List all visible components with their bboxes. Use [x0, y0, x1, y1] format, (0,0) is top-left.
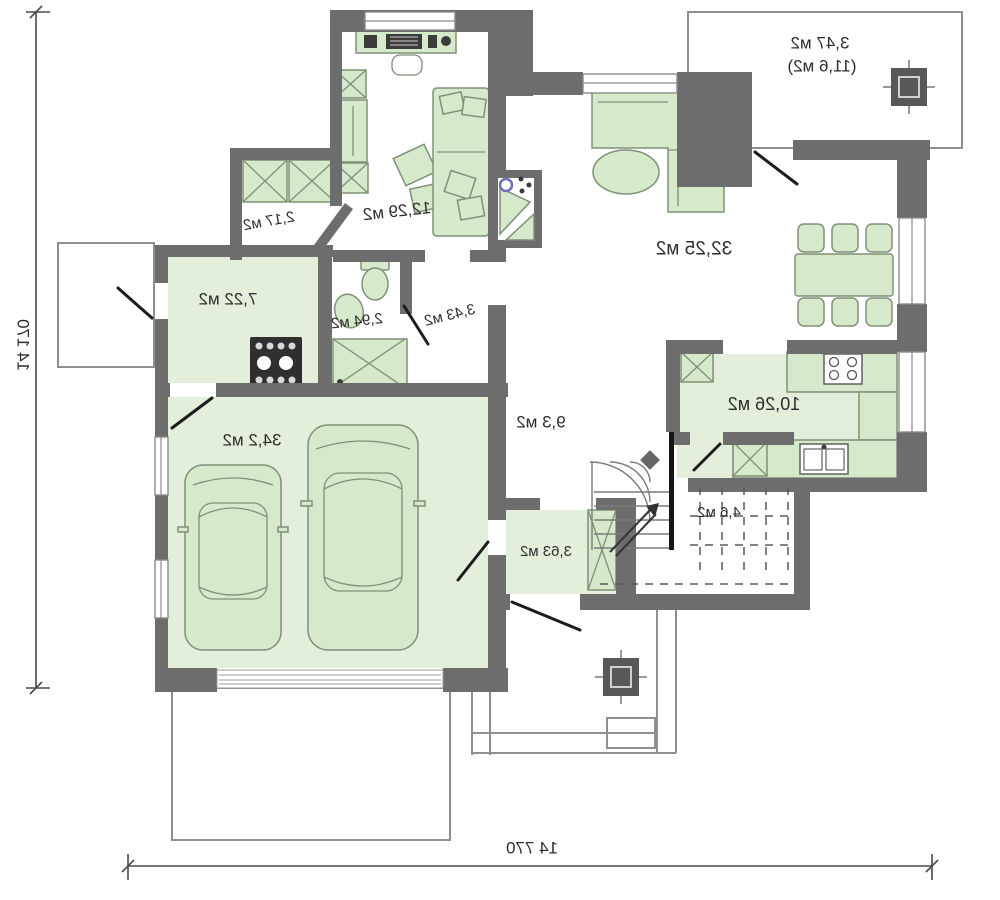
coffee-table — [593, 150, 659, 194]
terrace-lower-outline — [172, 688, 450, 840]
dining-chair — [832, 298, 858, 326]
terrace-door-swing — [755, 152, 797, 184]
bed — [433, 88, 489, 236]
closet-wardrobe — [243, 160, 335, 202]
toilet — [362, 268, 388, 300]
porch-column — [595, 650, 647, 704]
label-vestibule-area: 3,63 м2 — [520, 544, 572, 561]
dining-chair — [798, 298, 824, 326]
side-door-opening — [155, 283, 168, 319]
label-dimension-left: 14 170 — [13, 319, 32, 371]
lower-terrace-deck — [172, 688, 450, 840]
dining-chair — [866, 298, 892, 326]
label-hallway-area: 9,3 м2 — [516, 414, 566, 433]
desk-chair — [392, 55, 422, 75]
side-porch-door-swing — [118, 288, 152, 318]
terrace-column — [883, 60, 935, 114]
floor-plan: 3,47 м2 (11,6 м2) 32,25 м2 12,29 м2 2,17… — [0, 0, 1000, 900]
label-living-room-area: 32,25 м2 — [656, 240, 732, 261]
stair-railing — [669, 432, 674, 550]
label-dimension-bottom: 14 770 — [506, 840, 558, 859]
label-kitchen-area: 10,26 м2 — [728, 395, 800, 415]
label-garage-area: 34,2 м2 — [223, 432, 282, 451]
car-large — [301, 425, 425, 650]
label-upper-terrace-area: 3,47 м2 — [791, 35, 850, 54]
dining-chair — [866, 224, 892, 252]
armchair — [393, 144, 436, 186]
stove — [824, 354, 862, 384]
label-stairs-area: 4,6 м2 — [697, 505, 741, 522]
boiler-unit — [250, 337, 302, 389]
dining-chair — [798, 224, 824, 252]
garage-door — [217, 670, 443, 688]
dining-table — [795, 254, 893, 296]
fireplace — [490, 170, 542, 248]
dining-chair — [832, 224, 858, 252]
label-boiler-room-area: 7,22 м2 — [199, 291, 258, 310]
side-porch-deck — [58, 243, 154, 367]
car-small — [178, 465, 288, 650]
floor-plan-drawing — [0, 0, 1000, 900]
kitchen-counter-side — [859, 392, 897, 440]
side-porch-outline — [58, 243, 154, 367]
label-upper-terrace-total: (11,6 м2) — [787, 58, 856, 77]
